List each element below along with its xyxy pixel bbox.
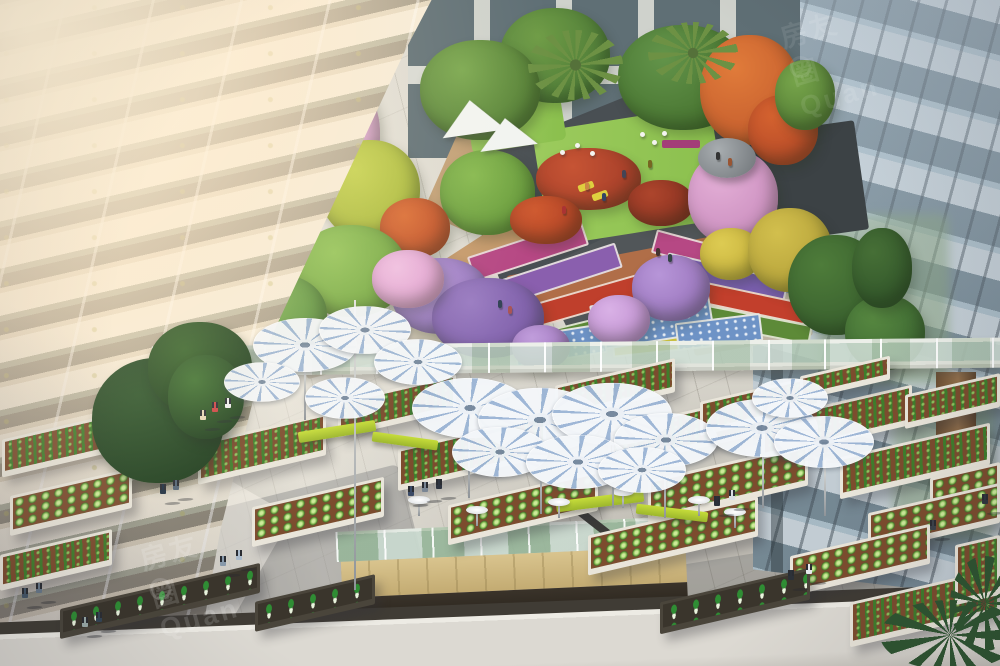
- petal-canopy: [305, 377, 385, 419]
- petal-canopies: [0, 0, 1000, 666]
- petal-canopy: [752, 378, 828, 418]
- petal-canopy: [598, 447, 686, 493]
- architectural-rendering: 房友圈Quan 房友圈Quan: [0, 0, 1000, 666]
- petal-canopy: [774, 416, 874, 468]
- petal-canopy: [374, 339, 462, 385]
- petal-canopy: [224, 362, 300, 402]
